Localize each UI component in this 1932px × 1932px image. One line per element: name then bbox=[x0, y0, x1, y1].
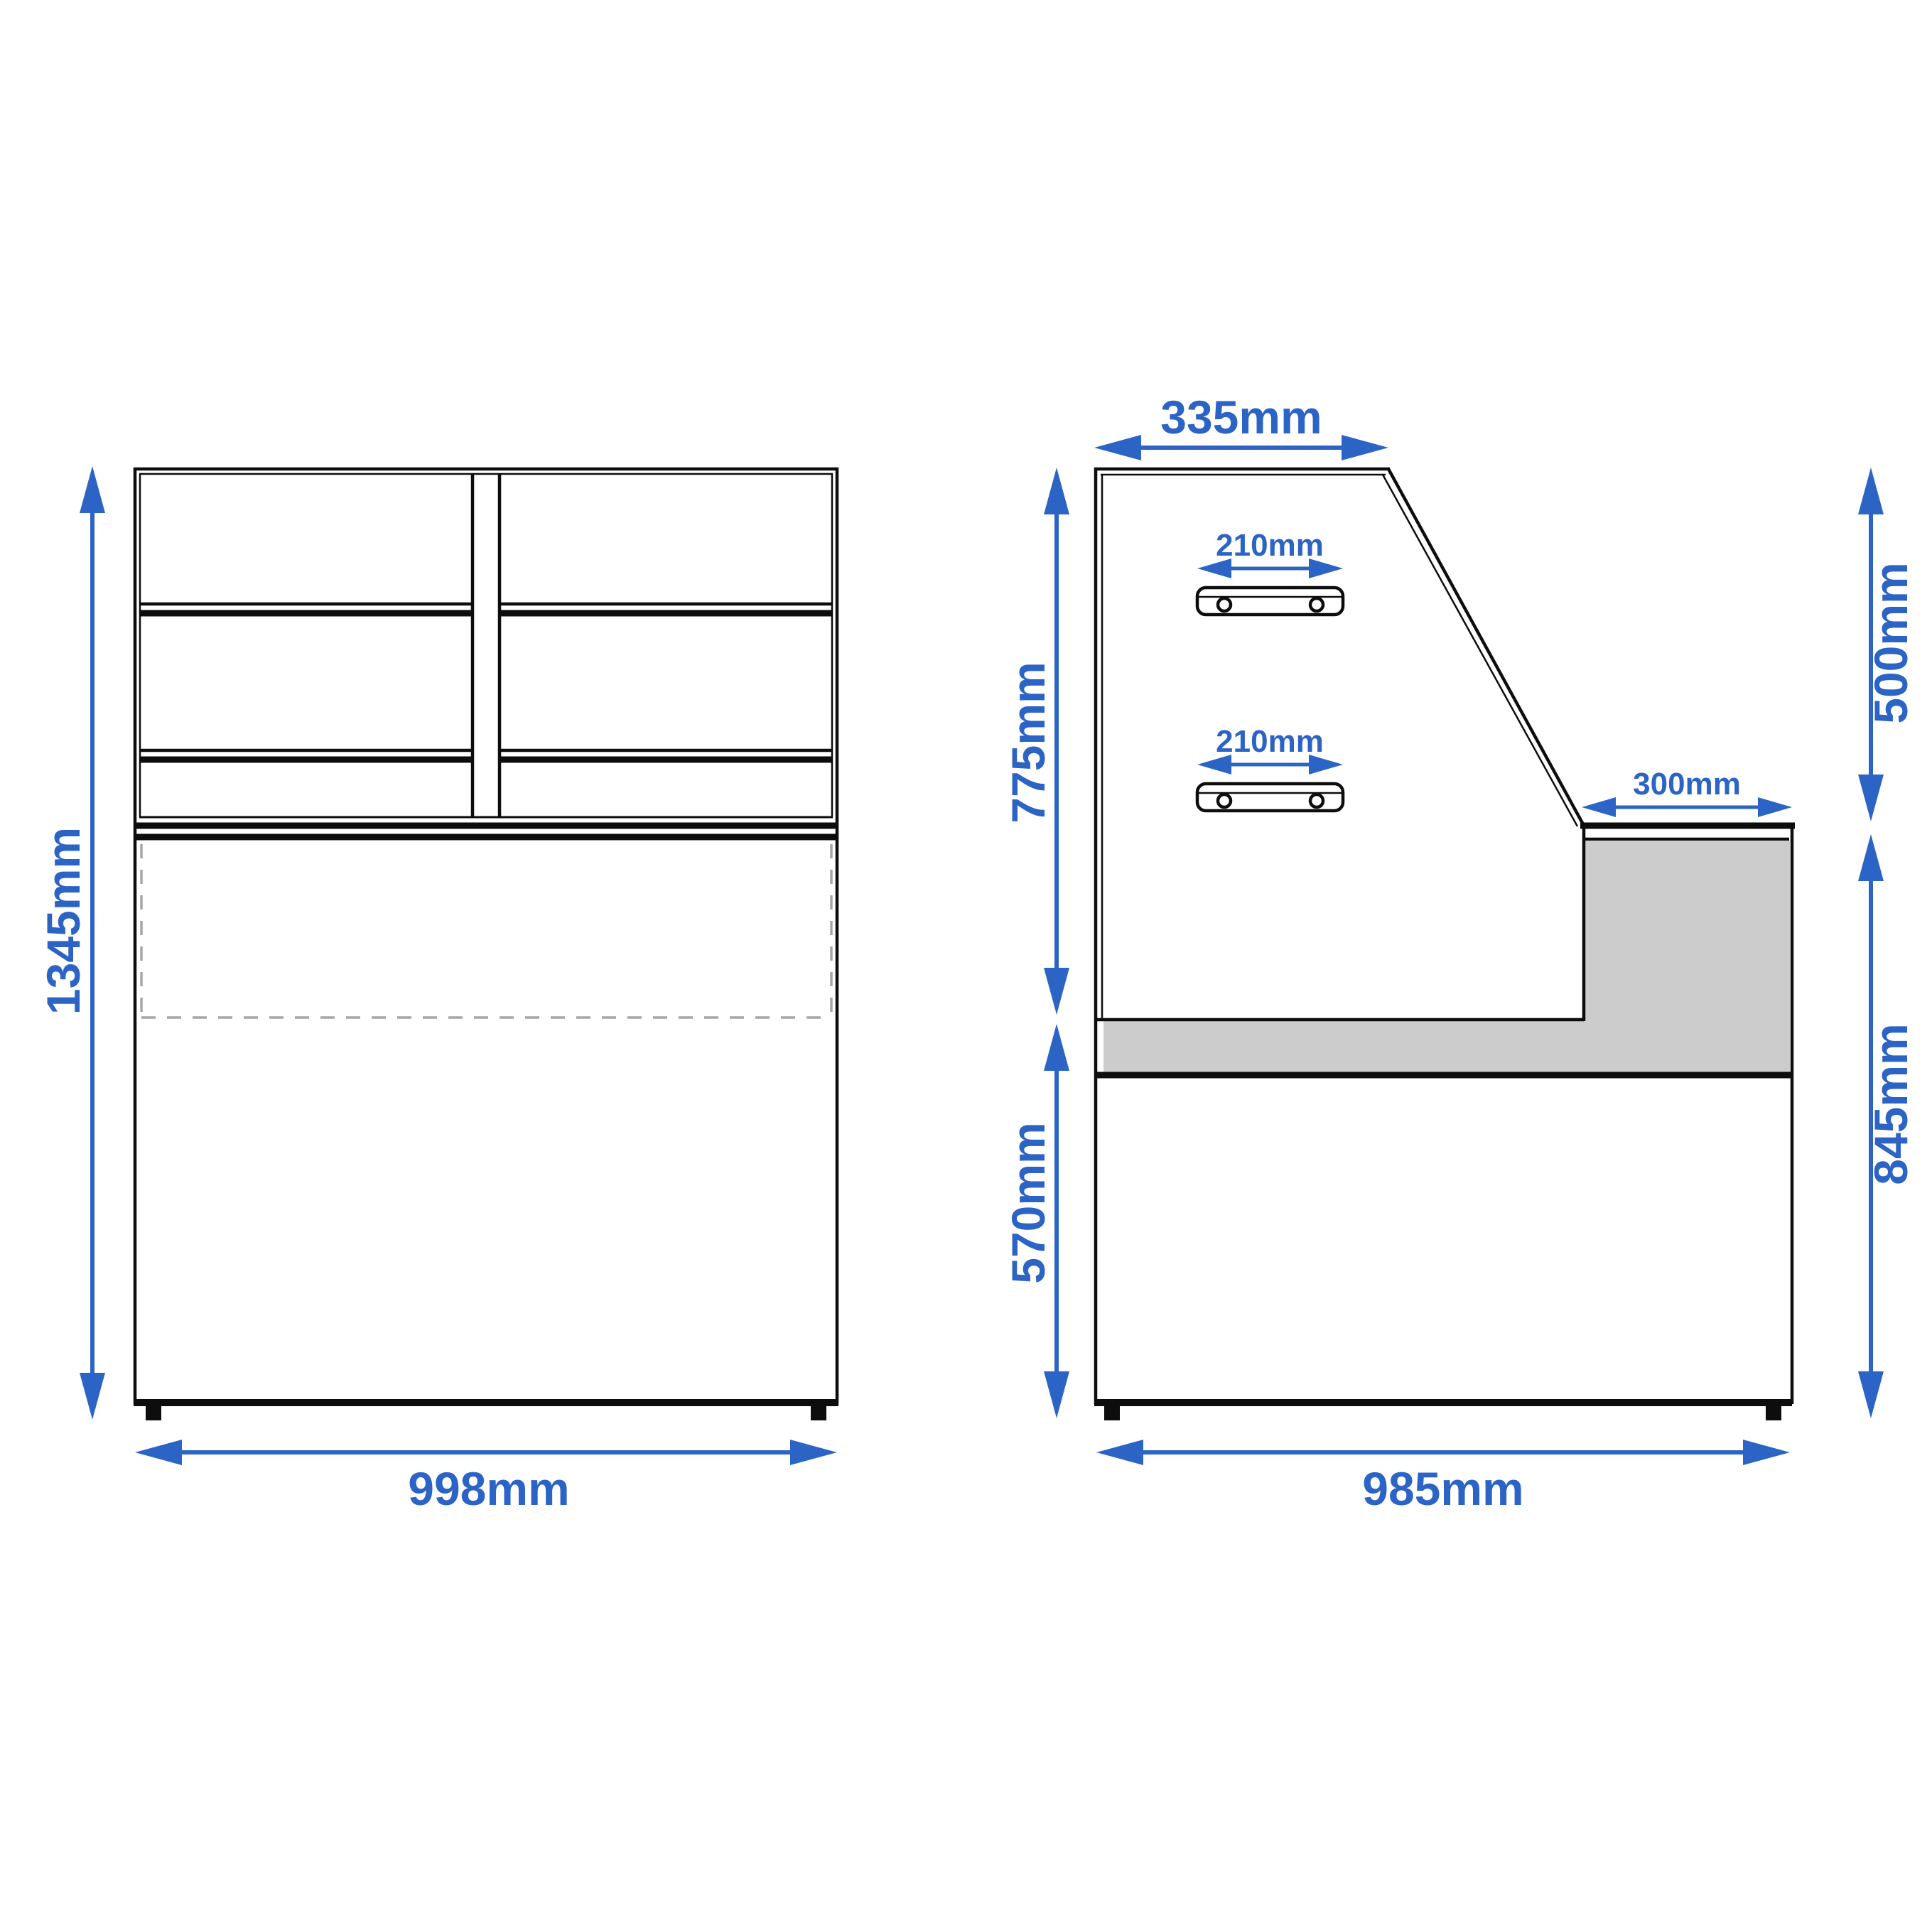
arrowhead-left-icon bbox=[1582, 797, 1616, 817]
upper-bracket-dimension: 210mm bbox=[1197, 528, 1343, 578]
counter-depth-dimension: 300mm bbox=[1582, 767, 1792, 817]
arrowhead-down-icon bbox=[1044, 968, 1069, 1015]
front-width-dimension: 998mm bbox=[135, 1440, 837, 1515]
arrowhead-right-icon bbox=[1743, 1440, 1790, 1465]
counter-depth-label: 300mm bbox=[1633, 767, 1741, 802]
side-slant-inner-line bbox=[1383, 475, 1577, 826]
counter-body-gray-panel bbox=[1585, 841, 1791, 1074]
bracket-screw-hole-icon bbox=[1310, 598, 1323, 611]
diagram-canvas: 1345mm 998mm bbox=[0, 0, 1932, 1932]
front-height-label: 1345mm bbox=[37, 827, 90, 1015]
side-top-width-dimension: 335mm bbox=[1094, 391, 1388, 460]
shelf-bracket-lower bbox=[1197, 784, 1343, 811]
upper-bracket-label: 210mm bbox=[1216, 528, 1324, 563]
side-lower-right-dimension: 845mm bbox=[1858, 834, 1917, 1418]
side-lower-left-dimension: 570mm bbox=[1002, 1024, 1069, 1418]
bracket-screw-hole-icon bbox=[1218, 598, 1231, 611]
arrowhead-up-icon bbox=[1858, 834, 1884, 881]
dimension-diagram: 1345mm 998mm bbox=[0, 0, 1932, 1932]
front-width-label: 998mm bbox=[408, 1462, 570, 1515]
front-view: 1345mm 998mm bbox=[37, 466, 838, 1515]
arrowhead-right-icon bbox=[1342, 435, 1388, 460]
side-top-width-label: 335mm bbox=[1160, 391, 1322, 443]
arrowhead-down-icon bbox=[1044, 1371, 1069, 1418]
worktop-band-gray-panel bbox=[1103, 1021, 1585, 1074]
side-left-foot bbox=[1104, 1406, 1120, 1420]
arrowhead-down-icon bbox=[1858, 1371, 1884, 1418]
side-view: 210mm 210mm 335mm 300mm 775mm bbox=[1002, 391, 1917, 1515]
front-outer-frame bbox=[135, 469, 837, 1403]
side-upper-left-dimension: 775mm bbox=[1002, 468, 1069, 1015]
arrowhead-up-icon bbox=[1044, 1024, 1069, 1071]
arrowhead-left-icon bbox=[135, 1440, 182, 1465]
arrowhead-right-icon bbox=[790, 1440, 837, 1465]
side-bottom-width-label: 985mm bbox=[1362, 1462, 1524, 1515]
side-slant-edge bbox=[1388, 469, 1583, 824]
side-lower-left-label: 570mm bbox=[1002, 1122, 1054, 1284]
side-bottom-width-dimension: 985mm bbox=[1096, 1440, 1790, 1515]
side-upper-right-label: 500mm bbox=[1864, 562, 1917, 724]
shelf-bracket-upper bbox=[1197, 588, 1343, 615]
arrowhead-up-icon bbox=[1044, 468, 1069, 514]
bracket-screw-hole-icon bbox=[1218, 794, 1231, 807]
arrowhead-right-icon bbox=[1758, 797, 1792, 817]
front-right-foot bbox=[811, 1406, 826, 1420]
front-left-foot bbox=[146, 1406, 161, 1420]
arrowhead-left-icon bbox=[1096, 1440, 1143, 1465]
front-height-dimension: 1345mm bbox=[37, 466, 105, 1420]
side-right-foot bbox=[1766, 1406, 1781, 1420]
side-lower-right-label: 845mm bbox=[1864, 1023, 1917, 1185]
arrowhead-left-icon bbox=[1094, 435, 1141, 460]
arrowhead-down-icon bbox=[80, 1373, 105, 1420]
arrowhead-up-icon bbox=[1858, 468, 1884, 514]
side-upper-left-label: 775mm bbox=[1002, 662, 1054, 824]
lower-bracket-dimension: 210mm bbox=[1197, 724, 1343, 775]
lower-bracket-label: 210mm bbox=[1216, 724, 1324, 759]
arrowhead-down-icon bbox=[1858, 775, 1884, 821]
side-upper-right-dimension: 500mm bbox=[1858, 468, 1917, 821]
arrowhead-up-icon bbox=[80, 466, 105, 513]
bracket-screw-hole-icon bbox=[1310, 794, 1323, 807]
